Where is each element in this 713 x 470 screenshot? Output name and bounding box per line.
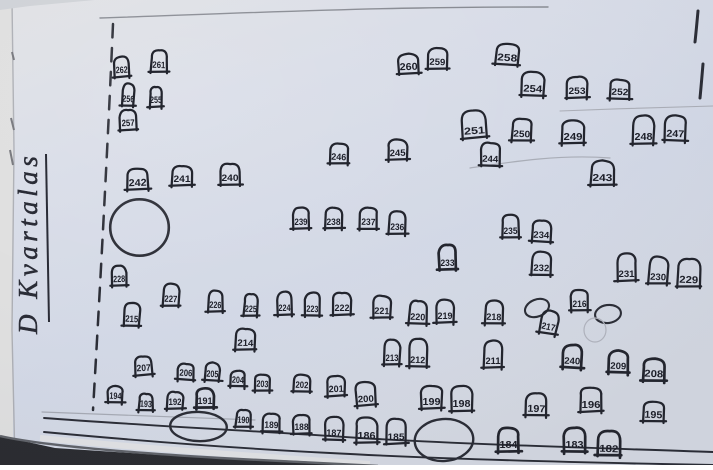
svg-text:201: 201	[328, 384, 343, 395]
svg-text:227: 227	[164, 294, 177, 304]
svg-text:233: 233	[441, 258, 455, 268]
svg-text:253: 253	[569, 86, 586, 96]
svg-text:238: 238	[327, 217, 341, 227]
svg-text:240: 240	[564, 356, 581, 367]
svg-text:261: 261	[152, 60, 165, 70]
svg-text:235: 235	[504, 226, 518, 236]
svg-text:258: 258	[497, 52, 518, 64]
svg-text:200: 200	[358, 394, 375, 405]
svg-text:239: 239	[295, 217, 308, 227]
svg-text:204: 204	[232, 375, 245, 386]
svg-text:262: 262	[115, 65, 128, 76]
svg-text:202: 202	[295, 380, 308, 390]
svg-text:242: 242	[128, 178, 147, 190]
svg-text:243: 243	[592, 173, 613, 184]
svg-text:257: 257	[121, 118, 134, 128]
svg-text:254: 254	[523, 84, 543, 96]
svg-text:212: 212	[410, 355, 425, 366]
svg-text:259: 259	[429, 57, 445, 68]
svg-text:222: 222	[335, 303, 350, 313]
svg-text:194: 194	[109, 391, 122, 402]
svg-text:184: 184	[500, 440, 518, 451]
svg-text:192: 192	[169, 397, 182, 407]
svg-text:251: 251	[464, 125, 486, 137]
svg-text:230: 230	[650, 272, 667, 283]
svg-text:213: 213	[386, 353, 399, 363]
svg-text:D Kvartalas: D Kvartalas	[13, 152, 43, 335]
svg-text:244: 244	[482, 154, 499, 165]
svg-text:256: 256	[122, 94, 135, 105]
svg-text:241: 241	[174, 174, 191, 184]
svg-text:252: 252	[611, 87, 628, 98]
svg-text:216: 216	[573, 299, 587, 309]
svg-text:191: 191	[198, 396, 213, 406]
svg-text:203: 203	[256, 379, 269, 390]
svg-text:206: 206	[179, 368, 193, 379]
svg-text:215: 215	[125, 314, 139, 325]
svg-text:260: 260	[399, 62, 418, 74]
svg-text:223: 223	[306, 304, 318, 314]
svg-text:208: 208	[644, 369, 664, 381]
svg-text:226: 226	[209, 300, 221, 310]
svg-text:190: 190	[237, 415, 250, 426]
svg-text:185: 185	[388, 432, 405, 442]
svg-text:255: 255	[150, 95, 162, 105]
svg-text:186: 186	[358, 431, 376, 442]
svg-text:246: 246	[331, 152, 347, 163]
svg-text:193: 193	[140, 399, 153, 410]
svg-text:231: 231	[619, 269, 635, 279]
svg-text:240: 240	[222, 173, 239, 183]
svg-text:232: 232	[533, 263, 549, 274]
svg-text:205: 205	[206, 369, 219, 380]
svg-text:249: 249	[564, 132, 583, 143]
svg-text:198: 198	[453, 399, 471, 410]
svg-text:250: 250	[513, 129, 531, 140]
svg-text:220: 220	[410, 312, 426, 323]
svg-text:224: 224	[279, 303, 292, 313]
svg-text:218: 218	[486, 312, 501, 323]
svg-text:245: 245	[389, 148, 405, 159]
svg-text:219: 219	[438, 311, 453, 321]
svg-text:236: 236	[390, 222, 404, 232]
svg-text:211: 211	[486, 356, 501, 366]
svg-text:189: 189	[264, 420, 278, 430]
svg-text:183: 183	[566, 440, 584, 451]
svg-text:228: 228	[113, 274, 125, 284]
svg-text:248: 248	[635, 132, 653, 143]
svg-text:199: 199	[423, 397, 441, 408]
svg-text:207: 207	[136, 363, 151, 374]
svg-text:196: 196	[582, 400, 601, 411]
svg-text:247: 247	[666, 129, 685, 141]
svg-text:195: 195	[644, 410, 663, 422]
svg-text:209: 209	[610, 361, 627, 372]
svg-text:221: 221	[374, 306, 389, 317]
svg-text:187: 187	[326, 428, 341, 439]
svg-text:234: 234	[533, 230, 550, 241]
svg-text:237: 237	[361, 217, 375, 227]
svg-text:188: 188	[295, 422, 309, 432]
svg-text:197: 197	[527, 404, 546, 416]
svg-text:182: 182	[599, 444, 619, 456]
svg-text:214: 214	[237, 338, 254, 349]
svg-text:229: 229	[679, 275, 699, 287]
svg-text:225: 225	[245, 304, 257, 314]
